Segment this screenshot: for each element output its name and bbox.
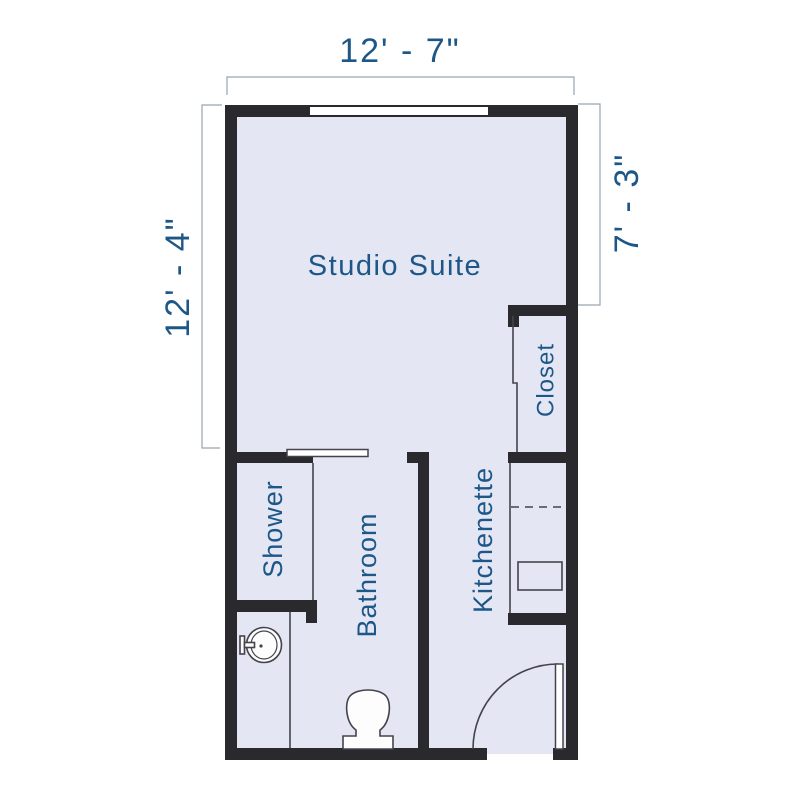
wall-bathroom-right — [418, 452, 429, 754]
wall-kitchenette-bottom — [508, 613, 566, 625]
room-label-closet: Closet — [533, 343, 560, 417]
wall-left — [225, 105, 237, 760]
shower-sliding-door — [287, 450, 368, 457]
floor-area — [231, 111, 572, 754]
toilet-icon — [343, 690, 393, 749]
dimension-label-top: 12' - 7" — [339, 32, 461, 70]
wall-right — [566, 105, 578, 760]
floor-plan: 12' - 7" 12' - 4" 7' - 3" Studio Suite C… — [0, 0, 800, 800]
room-label-bathroom: Bathroom — [352, 512, 382, 637]
floor-plan-canvas: 12' - 7" 12' - 4" 7' - 3" Studio Suite C… — [0, 0, 800, 800]
dimension-label-right: 7' - 3" — [608, 153, 646, 254]
wall-shower-bottom-stub — [306, 610, 317, 623]
wall-bottom-right-segment — [553, 748, 578, 760]
dimension-bracket-right — [578, 104, 600, 305]
window — [310, 107, 488, 115]
wall-kitchenette-top — [508, 452, 566, 463]
room-label-kitchenette: Kitchenette — [468, 467, 498, 613]
room-label-shower: Shower — [258, 480, 288, 578]
dimension-bracket-top — [227, 77, 574, 95]
dimension-label-left: 12' - 4" — [159, 216, 197, 338]
entry-door-leaf — [556, 664, 564, 749]
room-label-studio-suite: Studio Suite — [308, 250, 482, 282]
dimension-bracket-left — [202, 105, 222, 448]
wall-shower-bottom — [237, 600, 317, 612]
